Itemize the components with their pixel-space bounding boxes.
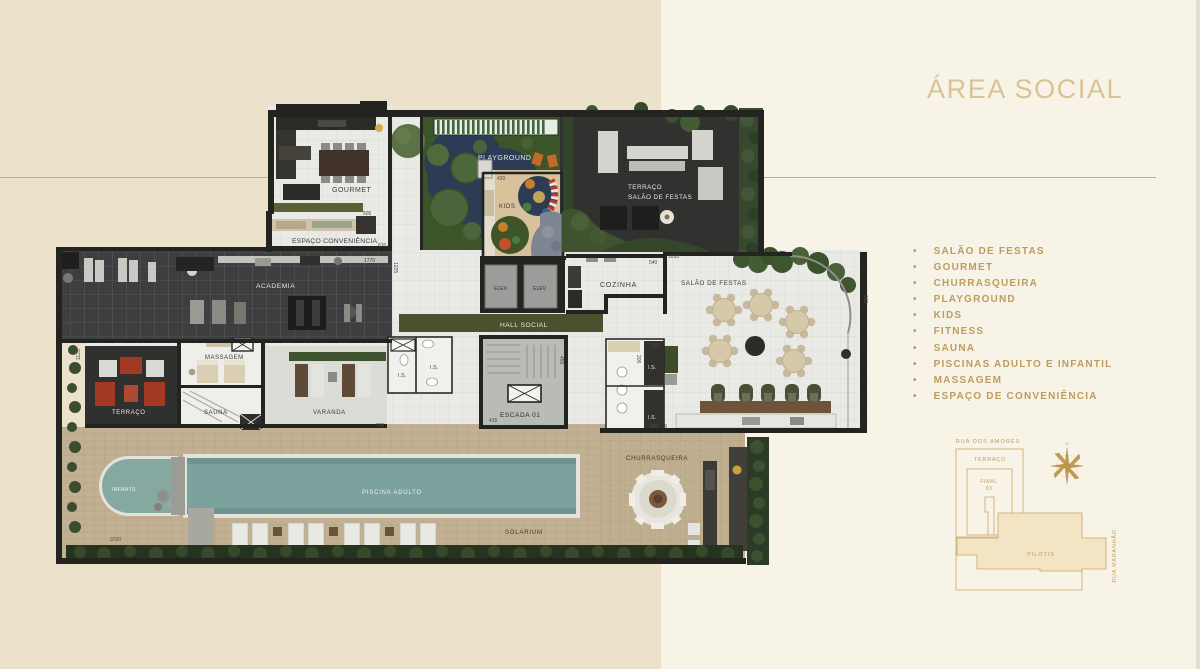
- svg-text:TERRAÇO: TERRAÇO: [628, 184, 662, 191]
- svg-text:3720: 3720: [110, 537, 121, 543]
- svg-text:ELEV.: ELEV.: [533, 286, 547, 292]
- svg-text:I.S.: I.S.: [398, 373, 406, 379]
- svg-text:ELEV.: ELEV.: [494, 286, 508, 292]
- svg-text:TERRAÇO: TERRAÇO: [974, 457, 1006, 463]
- svg-text:670: 670: [378, 243, 387, 249]
- svg-text:I.S.: I.S.: [430, 365, 438, 371]
- svg-text:705: 705: [376, 423, 385, 429]
- svg-text:FINAL: FINAL: [980, 479, 997, 485]
- svg-text:180: 180: [651, 343, 660, 349]
- svg-text:1030: 1030: [668, 254, 679, 260]
- svg-text:I.S.: I.S.: [648, 415, 656, 421]
- svg-text:RUA MARANHÃO: RUA MARANHÃO: [1111, 529, 1118, 582]
- svg-text:420: 420: [497, 176, 506, 182]
- svg-text:VARANDA: VARANDA: [313, 410, 346, 416]
- svg-text:1125: 1125: [76, 349, 82, 360]
- svg-text:SAUNA: SAUNA: [204, 410, 228, 416]
- svg-text:RUA DOS AMORÉS: RUA DOS AMORÉS: [956, 438, 1021, 445]
- svg-text:ACADEMIA: ACADEMIA: [256, 283, 295, 290]
- svg-text:415: 415: [489, 418, 498, 424]
- svg-text:PISCINA ADULTO: PISCINA ADULTO: [362, 490, 422, 496]
- svg-text:540: 540: [649, 260, 658, 266]
- svg-text:03: 03: [986, 486, 993, 492]
- svg-text:160: 160: [649, 424, 658, 430]
- svg-text:INFANTIL: INFANTIL: [112, 487, 137, 493]
- svg-text:460: 460: [66, 318, 72, 327]
- svg-text:505: 505: [363, 211, 372, 217]
- svg-text:TERRAÇO: TERRAÇO: [112, 410, 146, 416]
- svg-text:I.S.: I.S.: [648, 365, 656, 371]
- svg-text:1225: 1225: [392, 262, 398, 273]
- svg-text:ESPAÇO CONVENIÊNCIA: ESPAÇO CONVENIÊNCIA: [292, 236, 378, 245]
- svg-text:ESCADA 01: ESCADA 01: [500, 412, 540, 419]
- svg-text:PILOTIS: PILOTIS: [1027, 552, 1055, 558]
- svg-text:GOURMET: GOURMET: [332, 187, 372, 194]
- svg-text:SOLARIUM: SOLARIUM: [505, 530, 543, 536]
- svg-text:CHURRASQUEIRA: CHURRASQUEIRA: [626, 455, 688, 462]
- svg-text:205: 205: [635, 355, 641, 364]
- svg-text:SALÃO DE FESTAS: SALÃO DE FESTAS: [628, 192, 692, 201]
- svg-text:965: 965: [862, 295, 868, 304]
- svg-text:COZINHA: COZINHA: [600, 282, 637, 289]
- svg-text:455: 455: [558, 356, 564, 365]
- svg-text:HALL SOCIAL: HALL SOCIAL: [500, 322, 548, 329]
- svg-text:KIDS: KIDS: [499, 203, 515, 210]
- svg-text:N: N: [1066, 441, 1069, 446]
- svg-text:MASSAGEM: MASSAGEM: [205, 355, 244, 361]
- svg-text:SALÃO DE FESTAS: SALÃO DE FESTAS: [681, 278, 747, 287]
- svg-text:1770: 1770: [364, 258, 375, 264]
